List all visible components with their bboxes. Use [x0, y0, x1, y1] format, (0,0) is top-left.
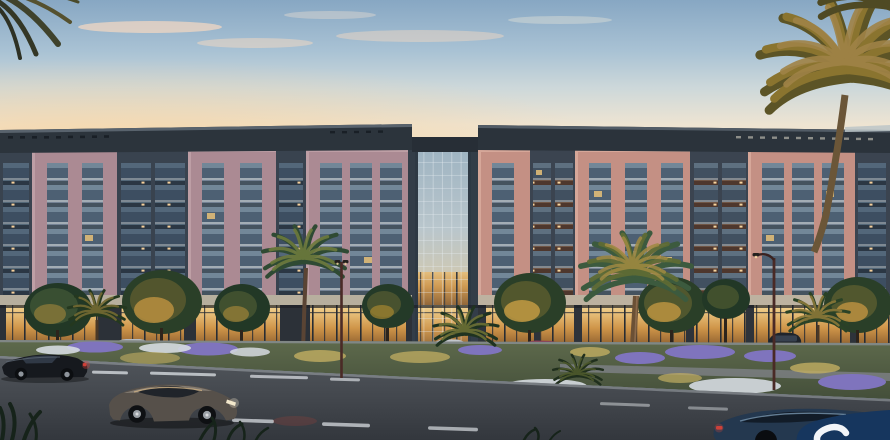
architectural-render-scene	[0, 0, 890, 440]
red-light-reflection	[273, 416, 317, 426]
tower-cap	[412, 137, 478, 152]
